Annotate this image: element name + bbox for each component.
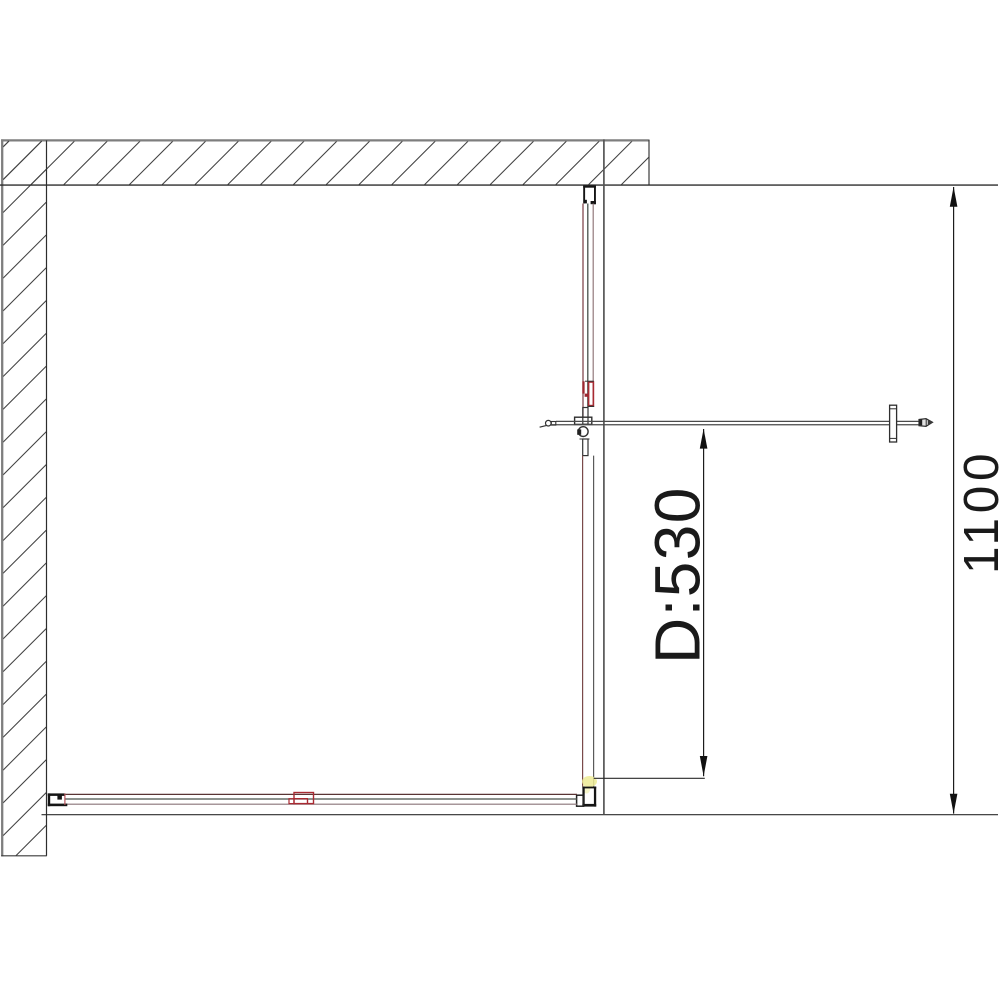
svg-text:D:530: D:530: [642, 486, 714, 664]
svg-text:1100: 1100: [954, 449, 1000, 574]
